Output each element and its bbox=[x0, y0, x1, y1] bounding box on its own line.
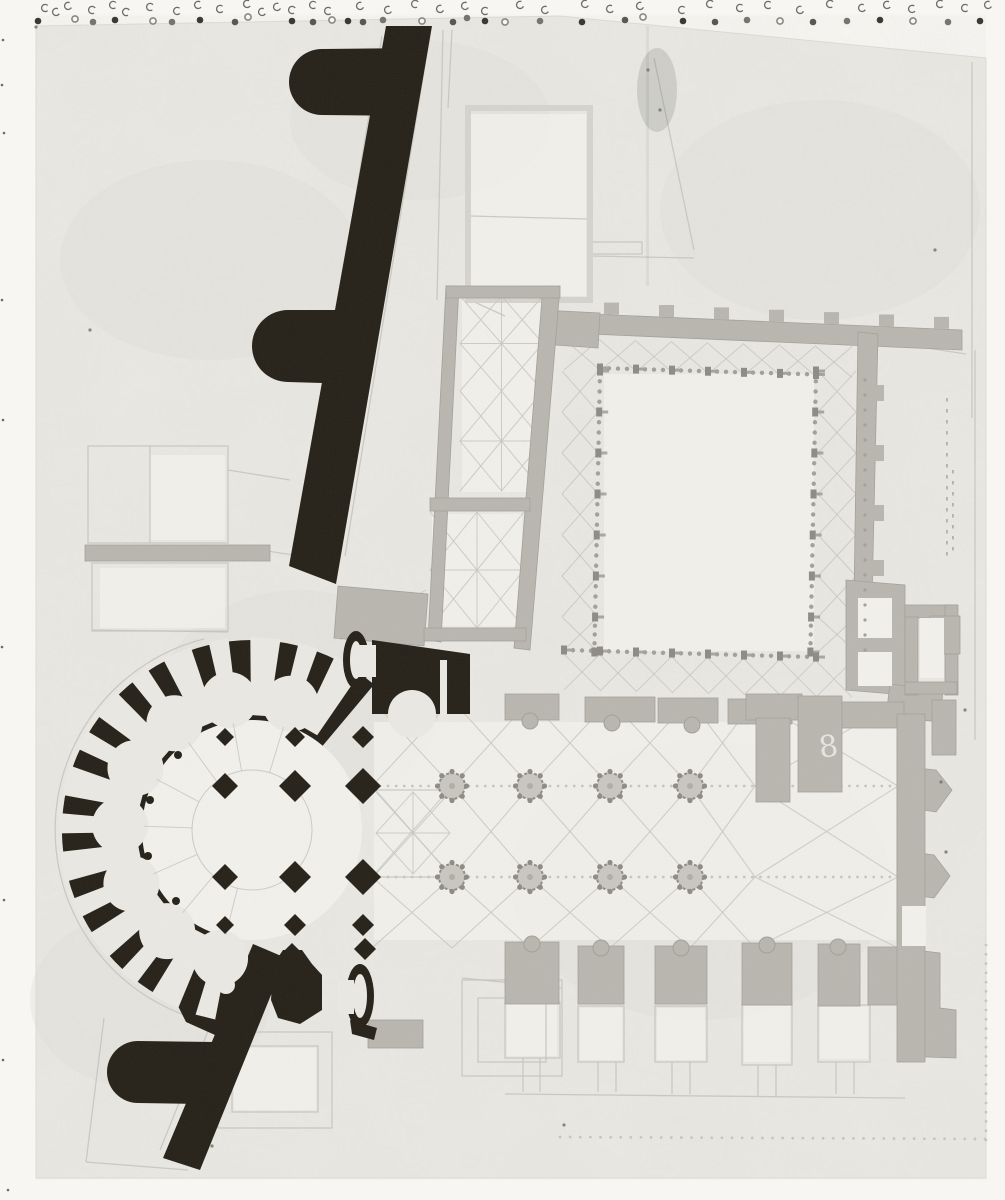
edge-dot bbox=[360, 19, 367, 26]
margin-speck bbox=[3, 899, 6, 902]
edge-dot bbox=[90, 19, 97, 26]
scanned-plate: 8 bbox=[0, 0, 1005, 1200]
edge-dot bbox=[169, 19, 176, 26]
edge-dot bbox=[197, 17, 204, 24]
edge-dot bbox=[945, 19, 952, 26]
edge-dot bbox=[482, 18, 489, 25]
edge-dot bbox=[877, 17, 884, 24]
margin-speck bbox=[2, 39, 5, 42]
edge-dot bbox=[537, 18, 544, 25]
margin-speck bbox=[1, 299, 4, 302]
edge-dot-open bbox=[910, 18, 916, 24]
edge-dot-open bbox=[502, 19, 508, 25]
edge-dot bbox=[112, 17, 119, 24]
margin-speck bbox=[2, 1059, 5, 1062]
halftone-grain bbox=[36, 14, 986, 1180]
edge-dot-open bbox=[640, 14, 646, 20]
edge-dot-open bbox=[419, 18, 425, 24]
margin-speck bbox=[2, 419, 5, 422]
edge-dot bbox=[810, 19, 817, 26]
edge-dot bbox=[680, 18, 687, 25]
edge-dot-open bbox=[777, 18, 783, 24]
edge-dot bbox=[622, 17, 629, 24]
edge-dot bbox=[345, 18, 352, 25]
cathedral-floor-plan: 8 bbox=[0, 0, 1005, 1200]
edge-dot bbox=[450, 19, 457, 26]
edge-dot bbox=[310, 19, 317, 26]
edge-dot bbox=[464, 15, 471, 22]
edge-dot bbox=[744, 17, 751, 24]
edge-dot bbox=[579, 19, 586, 26]
edge-dot bbox=[232, 19, 239, 26]
edge-dot-open bbox=[245, 14, 251, 20]
edge-dot-open bbox=[329, 17, 335, 23]
halftone-grain-overlay bbox=[36, 14, 986, 1180]
edge-dot-open bbox=[150, 18, 156, 24]
edge-dot bbox=[289, 18, 296, 25]
margin-speck bbox=[3, 132, 6, 135]
edge-dot bbox=[35, 18, 42, 25]
edge-dot bbox=[844, 18, 851, 25]
margin-speck bbox=[1, 84, 4, 87]
margin-speck bbox=[1, 646, 4, 649]
edge-dot bbox=[977, 18, 984, 25]
edge-dot bbox=[712, 19, 719, 26]
edge-dot-open bbox=[72, 16, 78, 22]
edge-dot bbox=[380, 17, 387, 24]
margin-speck bbox=[7, 1189, 10, 1192]
